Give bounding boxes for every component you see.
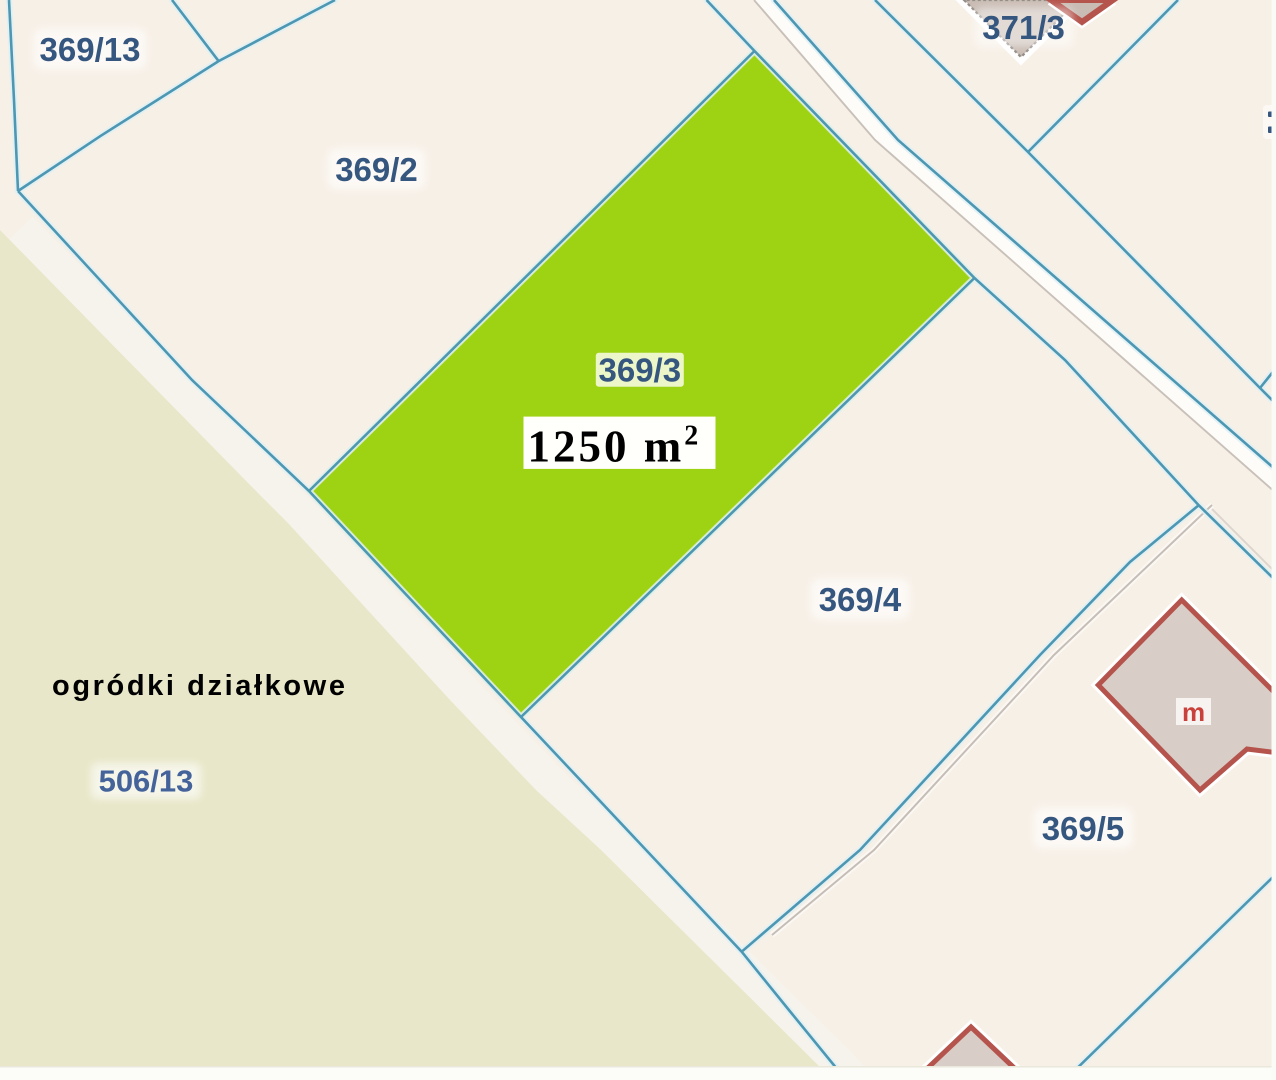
svg-text:369/4: 369/4 bbox=[819, 581, 902, 618]
svg-text:1250 m2: 1250 m2 bbox=[528, 421, 702, 472]
svg-text:m: m bbox=[1182, 697, 1205, 727]
svg-text:369/13: 369/13 bbox=[40, 31, 141, 68]
svg-text:371/3: 371/3 bbox=[982, 9, 1065, 46]
svg-text:369/2: 369/2 bbox=[335, 151, 418, 188]
svg-text:506/13: 506/13 bbox=[99, 764, 194, 799]
svg-text:369/3: 369/3 bbox=[599, 352, 682, 389]
svg-text:ogródki działkowe: ogródki działkowe bbox=[52, 670, 348, 702]
svg-text:369/5: 369/5 bbox=[1042, 810, 1125, 847]
